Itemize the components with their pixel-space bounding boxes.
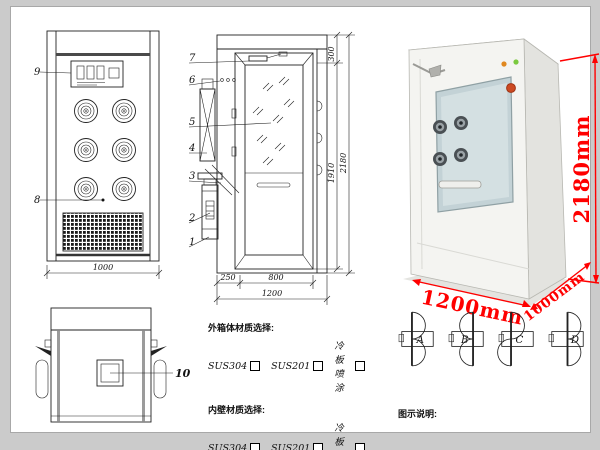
photo-dim-2180mm: 2180mm xyxy=(569,115,594,224)
sheet-content: 9 8 1000 xyxy=(10,6,591,433)
door-swing-icon-b: B xyxy=(449,308,486,370)
callout-10: 10 xyxy=(175,367,191,380)
air-return-grille xyxy=(63,213,143,251)
sus201-checkbox[interactable] xyxy=(313,361,323,371)
legend-title: 图示说明: xyxy=(398,408,598,422)
door-swing-icon-a: A xyxy=(399,308,436,370)
callout-5: 5 xyxy=(189,117,195,128)
callout-8: 8 xyxy=(34,195,40,206)
green-indicator-light xyxy=(513,59,518,64)
dim-1910: 1910 xyxy=(327,163,336,183)
callout-7: 7 xyxy=(189,53,196,64)
inner-wall-material-options: SUS304 SUS201 冷板喷涂 xyxy=(208,420,376,450)
outer-box-material-title: 外箱体材质选择: xyxy=(208,321,376,334)
callout-3: 3 xyxy=(189,171,195,182)
fan-unit xyxy=(200,79,239,195)
option-sus304-label: SUS304 xyxy=(208,443,247,450)
air-nozzles xyxy=(75,100,136,201)
product-photo: 2180mm 1200mm 1000mm xyxy=(393,17,600,323)
door-handle xyxy=(439,181,481,188)
front-view-drawing: 9 8 1000 xyxy=(31,23,181,281)
control-panel xyxy=(71,61,123,87)
option-sus201-label: SUS201 xyxy=(271,361,310,372)
dim-250: 250 xyxy=(219,273,235,282)
door-swing-icon-d: D xyxy=(549,308,586,370)
right-bracket xyxy=(151,340,167,398)
door-letter-a: A xyxy=(416,335,424,346)
section-view-drawing: 7 6 5 4 3 2 1 300 xyxy=(187,23,355,315)
technical-sheet-page: 9 8 1000 xyxy=(0,0,600,450)
option-coldplate-label: 冷板喷涂 xyxy=(334,420,352,450)
sus201-checkbox[interactable] xyxy=(313,443,323,450)
door-swing-icon-c: C xyxy=(499,308,536,370)
callout-2: 2 xyxy=(188,213,195,224)
front-width-dimension: 1000 xyxy=(44,263,162,279)
photo-height-dimension: 2180mm xyxy=(560,54,599,284)
dim-1000: 1000 xyxy=(93,263,113,272)
booth-outline xyxy=(217,35,327,273)
glass-hatch-marks xyxy=(253,77,294,165)
door-letter-b: B xyxy=(460,335,469,346)
door-swing-options: A B C D xyxy=(399,308,586,370)
legend: 图示说明: 1、风机 2、初效过滤器 3、喷嘴 4、高效过滤器 5、玻璃视窗 6… xyxy=(398,381,598,450)
top-band xyxy=(56,53,150,56)
callout-4: 4 xyxy=(188,143,195,154)
indicator-lights xyxy=(221,79,236,82)
sus304-checkbox[interactable] xyxy=(250,361,260,371)
coldplate-checkbox[interactable] xyxy=(355,361,365,371)
dim-2180: 2180 xyxy=(339,153,348,174)
dim-800: 800 xyxy=(268,273,283,282)
outer-box-material-options: SUS304 SUS201 冷板喷涂 xyxy=(208,338,376,394)
hinge-bumps xyxy=(317,101,322,175)
orange-indicator-light xyxy=(501,61,506,66)
material-selection: 外箱体材质选择: SUS304 SUS201 冷板喷涂 内壁材质选择: SUS3… xyxy=(208,321,376,450)
round-button xyxy=(507,84,516,93)
door xyxy=(232,53,313,269)
sus304-checkbox[interactable] xyxy=(250,443,260,450)
dim-1200: 1200 xyxy=(262,289,282,298)
inner-wall-material-title: 内壁材质选择: xyxy=(208,403,376,416)
callout-9: 9 xyxy=(34,67,41,78)
coldplate-checkbox[interactable] xyxy=(355,443,365,450)
door-letter-c: C xyxy=(515,335,523,346)
width-dimensions: 250 800 1200 xyxy=(214,273,330,305)
height-dimensions: 300 1910 2180 xyxy=(313,32,355,276)
option-sus304-label: SUS304 xyxy=(208,361,247,372)
door-handle xyxy=(257,183,290,187)
cabinet-side-face xyxy=(524,39,566,299)
option-sus201-label: SUS201 xyxy=(271,443,310,450)
top-view-drawing: 10 xyxy=(33,300,198,450)
option-coldplate-label: 冷板喷涂 xyxy=(334,338,352,394)
door-letter-d: D xyxy=(570,335,579,346)
dim-300: 300 xyxy=(327,46,336,61)
left-bracket xyxy=(35,340,51,398)
